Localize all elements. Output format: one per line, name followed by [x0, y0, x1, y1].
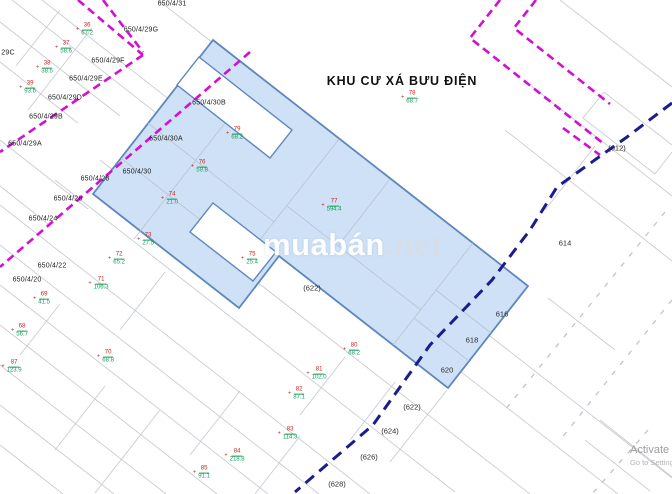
parcel-number: 75	[247, 252, 258, 260]
parcel-area: 102.0	[311, 375, 328, 382]
flag-icon: +	[241, 256, 244, 262]
street-label: 650/4/22	[38, 263, 67, 270]
street-label: 29C	[1, 50, 14, 57]
parcel-number: 76	[197, 160, 208, 168]
street-label: 650/4/29D	[48, 95, 82, 102]
plot-number: 618	[466, 336, 479, 345]
parcel-number: 68	[17, 324, 28, 332]
parcel-number: 85	[199, 466, 210, 474]
street-label: 650/4/29E	[69, 76, 103, 83]
plot-number: (622)	[303, 284, 321, 293]
parcel-number: 78	[407, 91, 418, 99]
flag-icon: +	[193, 470, 196, 476]
parcel-number: 83	[285, 427, 296, 435]
parcel-area: 25.4	[245, 260, 259, 267]
parcel-area: 67.2	[80, 31, 94, 38]
parcel-flag: +3838.5	[36, 61, 54, 76]
parcel-flag: +77594.4	[321, 199, 342, 214]
flag-icon: +	[137, 237, 140, 243]
flag-icon: +	[343, 347, 346, 353]
flag-icon: +	[36, 65, 39, 71]
parcel-area: 87.1	[292, 395, 306, 402]
flag-icon: +	[226, 131, 229, 137]
parcel-number: 82	[294, 387, 305, 395]
street-label: 650/4/20	[13, 277, 42, 284]
street-label: 650/4/28	[81, 176, 110, 183]
street-label: 650/4/26	[54, 196, 83, 203]
street-label: 650/4/31	[158, 1, 187, 8]
parcel-number: 36	[82, 23, 93, 31]
parcel-area: 41.5	[37, 300, 51, 307]
parcel-flag: +7868.7	[401, 91, 419, 106]
parcel-flag: +7068.8	[97, 350, 115, 365]
street-label: 650/4/29F	[91, 58, 124, 65]
parcel-area: 91.1	[197, 474, 211, 481]
parcel-number: 39	[25, 81, 36, 89]
parcel-number: 84	[232, 449, 243, 457]
flag-icon: +	[191, 164, 194, 170]
plot-number: (626)	[360, 453, 378, 462]
street-label: 650/4/24	[29, 216, 58, 223]
flag-icon: +	[1, 364, 4, 370]
map-labels: KHU CƯ XÁ BƯU ĐIỆN 650/4/31 650/4/29G 65…	[0, 0, 672, 494]
street-label: 650/4/30B	[192, 100, 226, 107]
parcel-flag: +7659.8	[191, 160, 209, 175]
parcel-area: 123.9	[6, 368, 23, 375]
parcel-flag: +87123.9	[1, 360, 22, 375]
parcel-area: 594.4	[326, 207, 343, 214]
parcel-number: 71	[96, 277, 107, 285]
parcel-area: 56.7	[15, 332, 29, 339]
parcel-area: 59.8	[195, 168, 209, 175]
flag-icon: +	[278, 431, 281, 437]
parcel-number: 69	[39, 292, 50, 300]
parcel-area: 27.5	[141, 241, 155, 248]
parcel-flag: +3667.2	[76, 23, 94, 38]
parcel-flag: +3993.6	[19, 81, 37, 96]
parcel-flag: +6941.5	[33, 292, 51, 307]
flag-icon: +	[76, 27, 79, 33]
plot-number: (612)	[608, 144, 626, 153]
street-label: 650/4/30A	[149, 136, 183, 143]
parcel-number: 73	[143, 233, 154, 241]
flag-icon: +	[161, 196, 164, 202]
street-label: 650/4/29G	[124, 27, 159, 34]
parcel-flag: +6856.7	[11, 324, 29, 339]
map-title: KHU CƯ XÁ BƯU ĐIỆN	[327, 74, 477, 88]
parcel-area: 68.7	[405, 99, 419, 106]
activation-watermark: Activate Windows Go to Settings to activ…	[630, 444, 672, 467]
activation-line1: Activate Windows	[630, 444, 672, 456]
parcel-flag: +7525.4	[241, 252, 259, 267]
parcel-number: 79	[232, 127, 243, 135]
plot-number: 614	[559, 239, 572, 248]
parcel-area: 106.3	[93, 285, 110, 292]
parcel-flag: +8068.2	[343, 343, 361, 358]
parcel-area: 38.5	[40, 69, 54, 76]
flag-icon: +	[19, 85, 22, 91]
parcel-flag: +8591.1	[193, 466, 211, 481]
parcel-area: 58.6	[59, 49, 73, 56]
street-label: 650/4/29A	[8, 141, 42, 148]
plot-number: (624)	[381, 427, 399, 436]
parcel-number: 72	[114, 252, 125, 260]
flag-icon: +	[306, 371, 309, 377]
parcel-flag: +84218.8	[224, 449, 245, 464]
parcel-area: 93.6	[23, 89, 37, 96]
parcel-area: 218.8	[229, 457, 246, 464]
parcel-flag: +7327.5	[137, 233, 155, 248]
parcel-area: 65.2	[112, 260, 126, 267]
parcel-area: 114.3	[282, 435, 299, 442]
flag-icon: +	[224, 453, 227, 459]
flag-icon: +	[55, 45, 58, 51]
flag-icon: +	[401, 95, 404, 101]
parcel-number: 77	[329, 199, 340, 207]
flag-icon: +	[288, 391, 291, 397]
street-label: 650/4/29B	[29, 114, 63, 121]
flag-icon: +	[33, 296, 36, 302]
flag-icon: +	[97, 354, 100, 360]
parcel-area: 68.8	[101, 358, 115, 365]
cadastral-map: muabán.net KHU CƯ XÁ BƯU ĐIỆN 650/4/31 6…	[0, 0, 672, 494]
parcel-flag: +7968.2	[226, 127, 244, 142]
parcel-flag: +3758.6	[55, 41, 73, 56]
parcel-number: 81	[314, 367, 325, 375]
parcel-number: 74	[167, 192, 178, 200]
parcel-number: 37	[61, 41, 72, 49]
parcel-flag: +71106.3	[88, 277, 109, 292]
flag-icon: +	[321, 203, 324, 209]
parcel-area: 68.2	[230, 135, 244, 142]
street-label: 650/4/30	[123, 169, 152, 176]
flag-icon: +	[88, 281, 91, 287]
flag-icon: +	[11, 328, 14, 334]
parcel-flag: +7265.2	[108, 252, 126, 267]
plot-number: 620	[441, 366, 454, 375]
parcel-number: 87	[9, 360, 20, 368]
parcel-flag: +8287.1	[288, 387, 306, 402]
parcel-flag: +81102.0	[306, 367, 327, 382]
parcel-number: 38	[42, 61, 53, 69]
plot-number: (628)	[328, 480, 346, 489]
plot-number: (622)	[403, 403, 421, 412]
parcel-area: 68.2	[347, 351, 361, 358]
parcel-number: 70	[103, 350, 114, 358]
parcel-flag: +83114.3	[278, 427, 299, 442]
parcel-number: 80	[349, 343, 360, 351]
flag-icon: +	[108, 256, 111, 262]
parcel-flag: +7421.0	[161, 192, 179, 207]
plot-number: 616	[496, 310, 509, 319]
activation-line2: Go to Settings to activate Windows.	[630, 458, 672, 467]
parcel-area: 21.0	[165, 200, 179, 207]
